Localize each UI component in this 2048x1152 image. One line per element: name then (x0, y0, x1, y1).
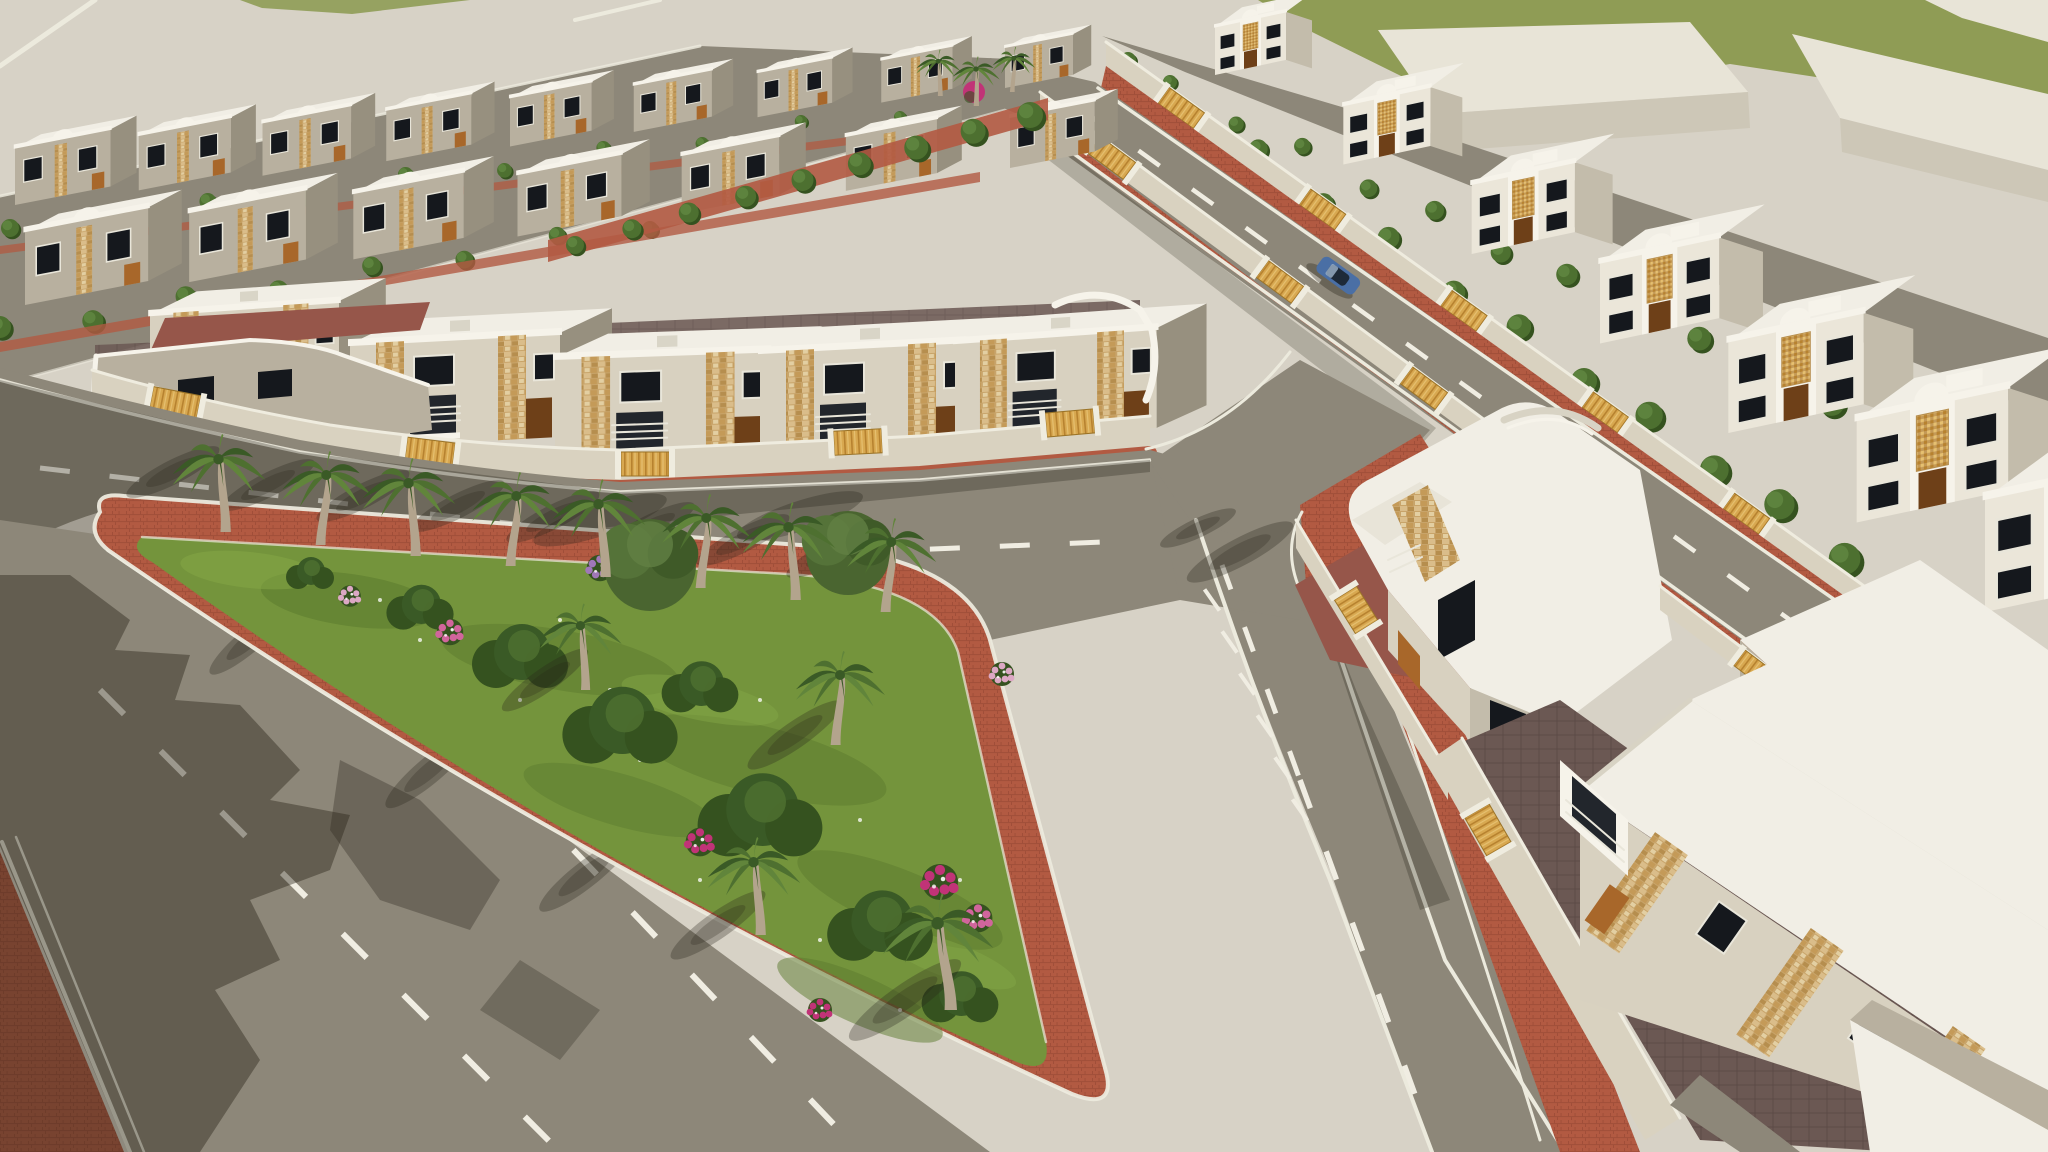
render-canvas (0, 0, 2048, 1152)
compound-aerial-render: Sunlit aerial 3D rendering of a beige re… (0, 0, 2048, 1152)
gold-gate-icon (615, 449, 675, 479)
pink-tree-icon (963, 81, 985, 103)
